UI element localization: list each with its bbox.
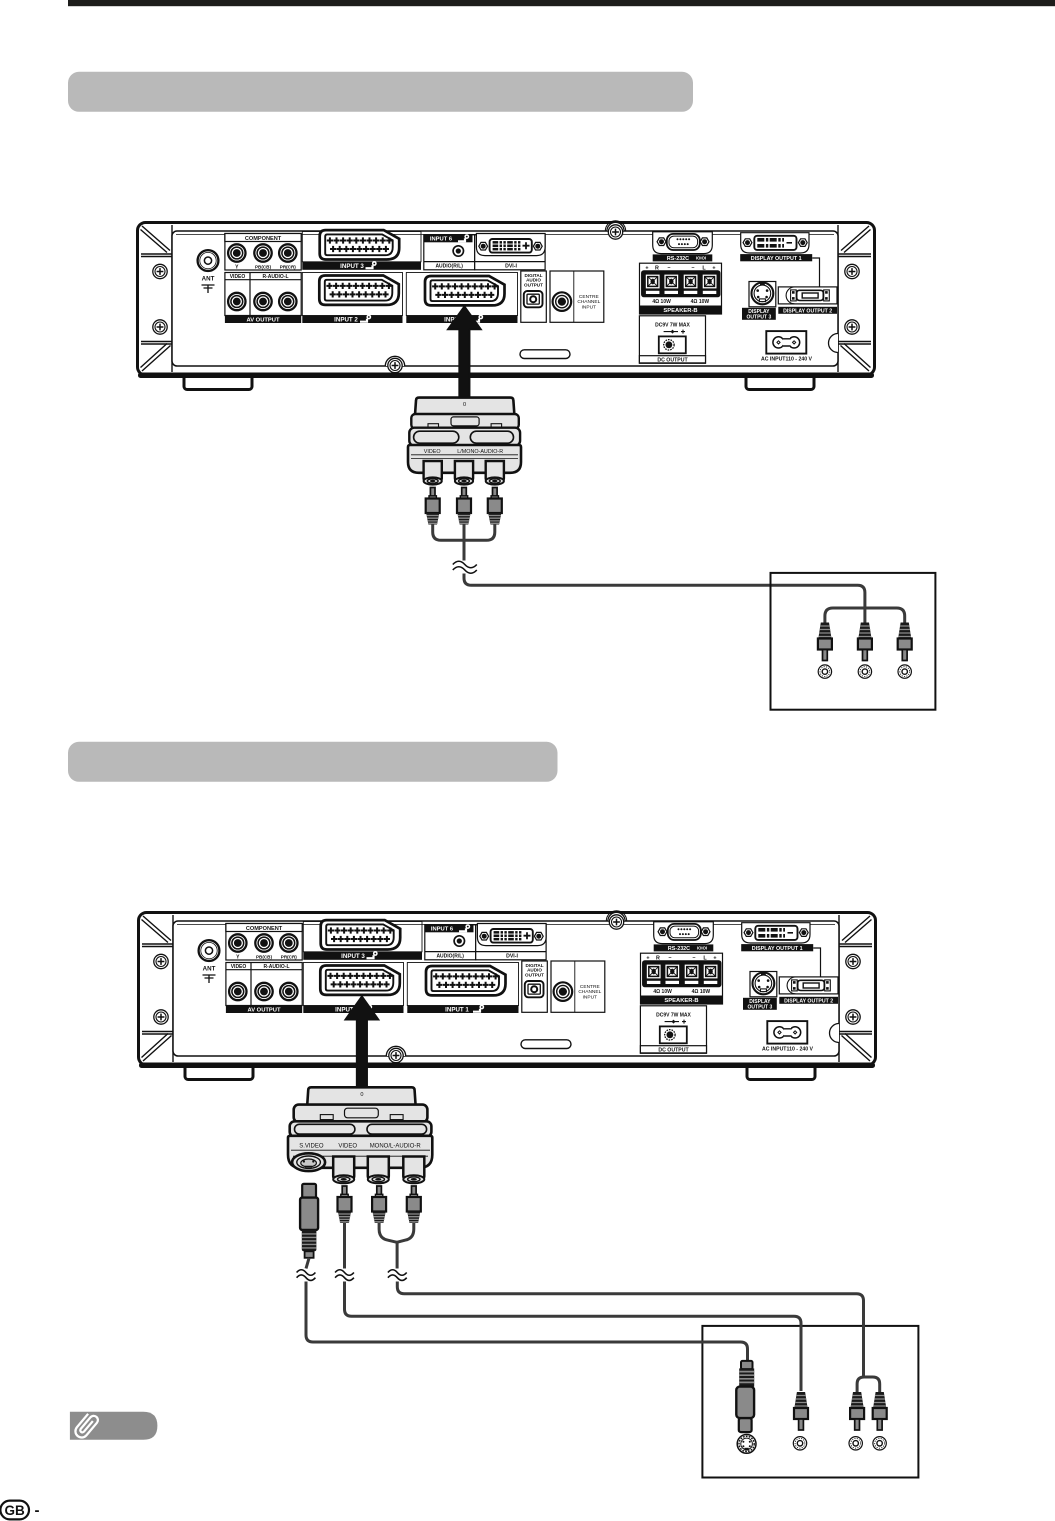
svg-text:VIDEO: VIDEO xyxy=(338,1143,357,1149)
svg-text:-: - xyxy=(35,1502,40,1519)
svg-text:0: 0 xyxy=(360,1092,363,1098)
svg-text:GB: GB xyxy=(4,1503,25,1518)
svg-text:L/MONO-AUDIO-R: L/MONO-AUDIO-R xyxy=(457,449,503,455)
svg-text:VIDEO: VIDEO xyxy=(424,449,441,455)
svg-text:S.VIDEO: S.VIDEO xyxy=(299,1143,324,1149)
svg-text:MONO/L-AUDIO-R: MONO/L-AUDIO-R xyxy=(370,1143,422,1149)
svg-text:0: 0 xyxy=(463,402,466,408)
